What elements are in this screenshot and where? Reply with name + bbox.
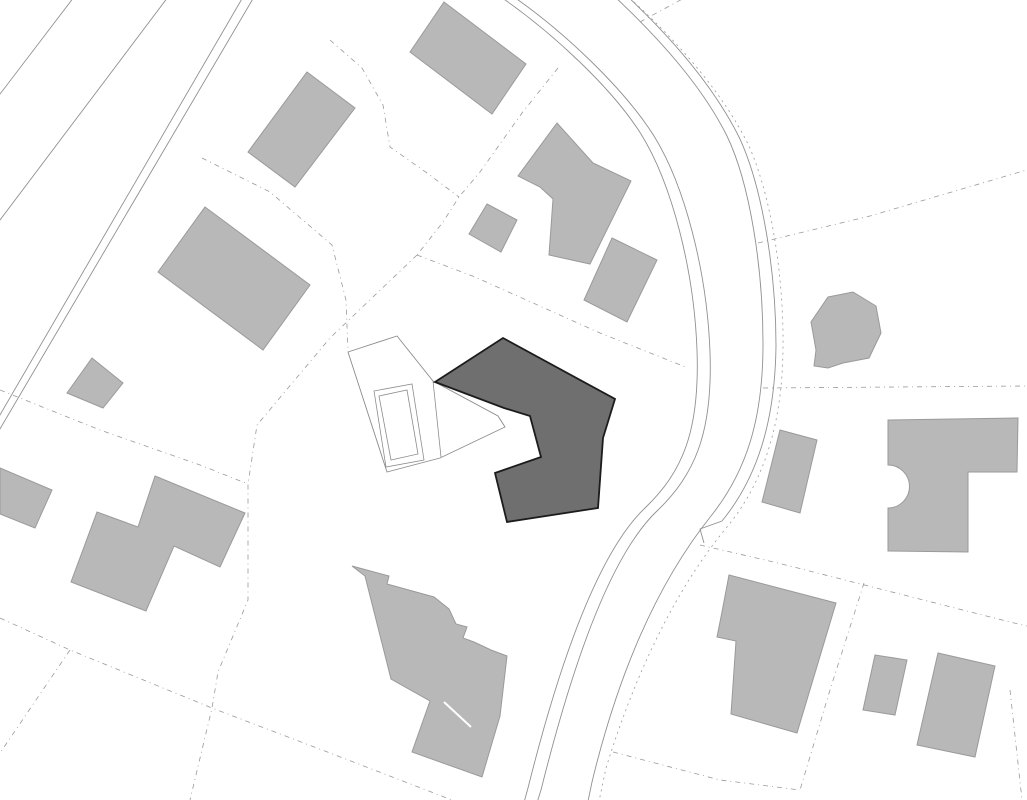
parcel-15 bbox=[1010, 690, 1022, 800]
parcel-8 bbox=[0, 650, 70, 753]
building-1 bbox=[410, 2, 526, 114]
building-13 bbox=[67, 358, 123, 408]
street-line-2 bbox=[0, 0, 168, 224]
building-3 bbox=[158, 207, 310, 350]
building-2 bbox=[248, 72, 355, 187]
building-12 bbox=[917, 653, 995, 757]
building-11 bbox=[863, 655, 907, 715]
parcel-12 bbox=[763, 386, 1027, 388]
parcel-11 bbox=[758, 170, 1027, 243]
building-15 bbox=[71, 476, 245, 611]
street-line-1 bbox=[0, 0, 74, 98]
parcel-14 bbox=[640, 0, 686, 22]
building-14 bbox=[0, 468, 52, 528]
building-9 bbox=[888, 418, 1018, 552]
parcel-9 bbox=[613, 752, 800, 790]
building-16 bbox=[352, 566, 507, 777]
site-plan bbox=[0, 0, 1027, 800]
building-7 bbox=[811, 292, 881, 368]
building-5 bbox=[469, 204, 517, 252]
site-plan-drawing bbox=[0, 0, 1027, 800]
building-10 bbox=[717, 575, 836, 733]
parcel-5 bbox=[0, 390, 248, 484]
